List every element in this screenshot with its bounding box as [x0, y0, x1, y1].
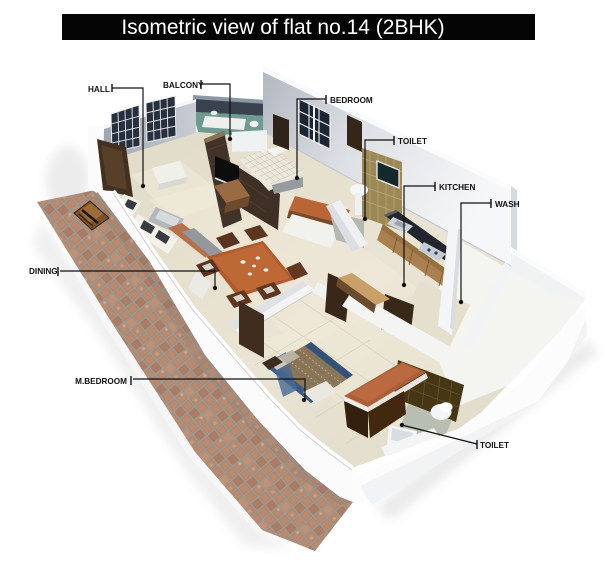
svg-text:WASH: WASH [495, 200, 520, 209]
svg-text:BEDROOM: BEDROOM [330, 96, 373, 105]
svg-text:M.BEDROOM: M.BEDROOM [75, 377, 127, 386]
svg-text:TOILET: TOILET [398, 137, 427, 146]
svg-text:DINING: DINING [29, 267, 58, 276]
svg-text:BALCONY: BALCONY [163, 81, 204, 90]
svg-text:KITCHEN: KITCHEN [439, 183, 475, 192]
svg-text:HALL: HALL [88, 85, 110, 94]
svg-text:TOILET: TOILET [480, 441, 509, 450]
svg-text:Isometric view of flat no.14 (: Isometric view of flat no.14 (2BHK) [121, 16, 444, 39]
